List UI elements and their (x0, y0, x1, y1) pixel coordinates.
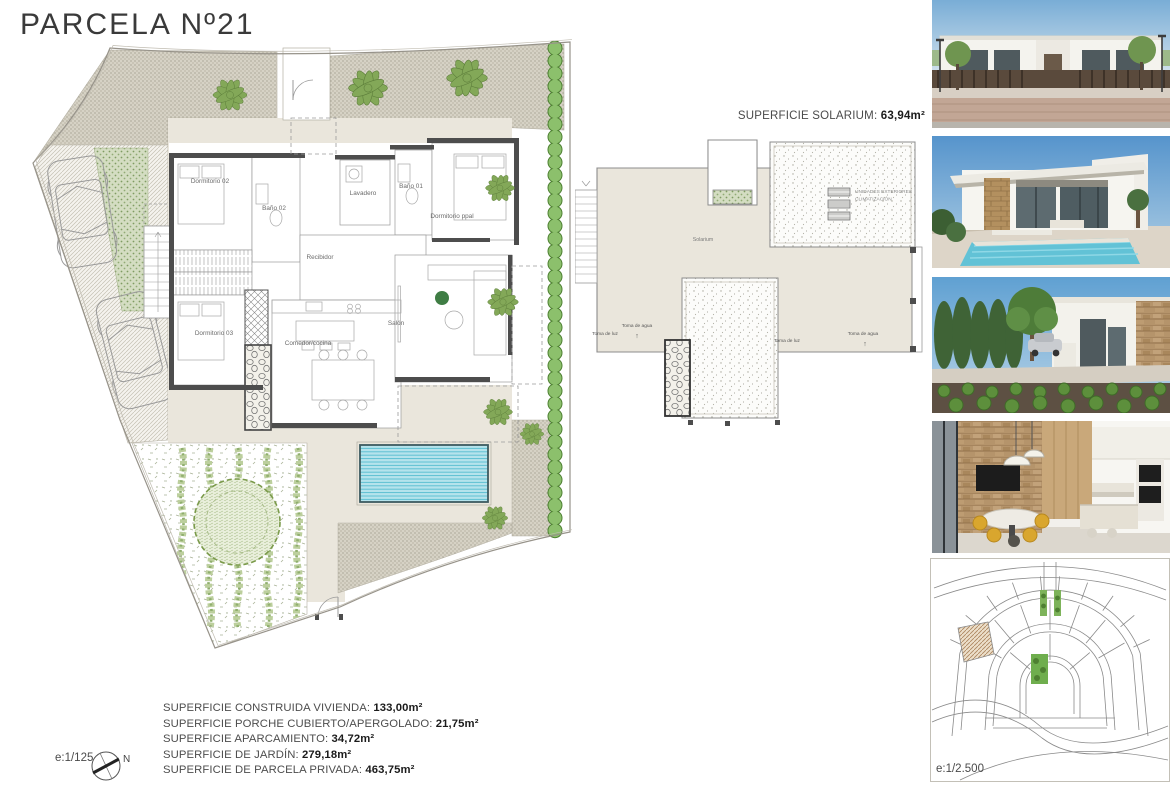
compass-icon: N (84, 744, 136, 785)
swimming-pool (360, 445, 488, 502)
area-value: 279,18m² (302, 749, 351, 761)
area-value: 133,00m² (373, 702, 422, 714)
photo-villa-garden (932, 277, 1170, 413)
area-label: SUPERFICIE DE PARCELA PRIVADA: (163, 764, 365, 776)
site-map (930, 558, 1170, 782)
area-label: SUPERFICIE DE JARDÍN: (163, 749, 302, 761)
area-value: 34,72m² (331, 733, 374, 745)
toma-luz-label-right: Toma de luz (774, 338, 800, 344)
room-label-salon: Salón (388, 320, 405, 327)
entrance-walkway (283, 48, 330, 120)
toma-agua-label-left: Toma de agua (622, 323, 653, 329)
area-label: SUPERFICIE PORCHE CUBIERTO/APERGOLADO: (163, 718, 436, 730)
area-row: SUPERFICIE CONSTRUIDA VIVIENDA: 133,00m² (163, 701, 479, 717)
solarium-label: Solarium (693, 237, 713, 243)
area-row: SUPERFICIE DE PARCELA PRIVADA: 463,75m² (163, 763, 479, 779)
toma-agua-label-right: Toma de agua (848, 331, 879, 337)
stair-hatch (245, 290, 268, 345)
solarium-heading: SUPERFICIE SOLARIUM: 63,94m² (600, 110, 925, 122)
plant-icon (435, 291, 449, 305)
ac-label-line2: CLIMATIZACIÓN (855, 196, 892, 203)
room-label-comedor-cocina: Comedor/cocina (285, 340, 332, 347)
ac-unit (828, 212, 850, 220)
area-value: 21,75m² (436, 718, 479, 730)
room-label-recibidor: Recibidor (307, 254, 335, 261)
planter (713, 190, 752, 204)
room-label-dormitorio02: Dormitorio 02 (191, 178, 230, 185)
solarium-heading-value: 63,94m² (881, 110, 925, 122)
room-label-lavadero: Lavadero (350, 190, 377, 197)
area-label: SUPERFICIE CONSTRUIDA VIVIENDA: (163, 702, 373, 714)
gravel-area-bottom (338, 523, 512, 593)
room-label-bano01: Baño 01 (399, 183, 423, 190)
site-map-scale-label: e:1/2.500 (936, 763, 984, 775)
solarium-heading-label: SUPERFICIE SOLARIUM: (738, 110, 881, 122)
ac-unit (828, 188, 850, 196)
ac-unit (828, 200, 850, 208)
room-label-dormitorio-ppal: Dormitorio ppal (430, 213, 473, 220)
area-row: SUPERFICIE DE JARDÍN: 279,18m² (163, 748, 479, 764)
gravel-roof-square (682, 278, 778, 418)
main-site-plan: Dormitorio 02 Baño 02 Lavadero Baño 01 D… (6, 36, 572, 676)
toma-luz-label-left: Toma de luz (592, 331, 618, 337)
area-row: SUPERFICIE APARCAMIENTO: 34,72m² (163, 732, 479, 748)
ac-units-zone: UNIDADES EXTERIORES CLIMATIZACIÓN (770, 142, 915, 247)
area-row: SUPERFICIE PORCHE CUBIERTO/APERGOLADO: 2… (163, 717, 479, 733)
stairwell-bulkhead (665, 340, 690, 416)
areas-table: SUPERFICIE CONSTRUIDA VIVIENDA: 133,00m²… (163, 701, 479, 779)
solarium-plan: UNIDADES EXTERIORES CLIMATIZACIÓN Solari… (575, 136, 927, 428)
room-label-bano02: Baño 02 (262, 205, 286, 212)
toma-agua-icon-right: ↑ (863, 341, 867, 348)
photo-villa-pool (932, 136, 1170, 268)
area-label: SUPERFICIE APARCAMIENTO: (163, 733, 331, 745)
photo-interior-kitchen (932, 421, 1170, 553)
area-value: 463,75m² (365, 764, 414, 776)
ac-label-line1: UNIDADES EXTERIORES (855, 189, 912, 195)
toma-agua-icon-left: ↑ (635, 333, 639, 340)
pergola-strip (910, 247, 922, 352)
plan-sheet: PARCELA Nº21 (0, 0, 1170, 785)
photo-villa-street (932, 0, 1170, 128)
tree-icon (194, 479, 280, 565)
north-label: N (123, 754, 130, 765)
room-label-dormitorio03: Dormitorio 03 (195, 330, 234, 337)
solarium-stairs (575, 181, 597, 283)
